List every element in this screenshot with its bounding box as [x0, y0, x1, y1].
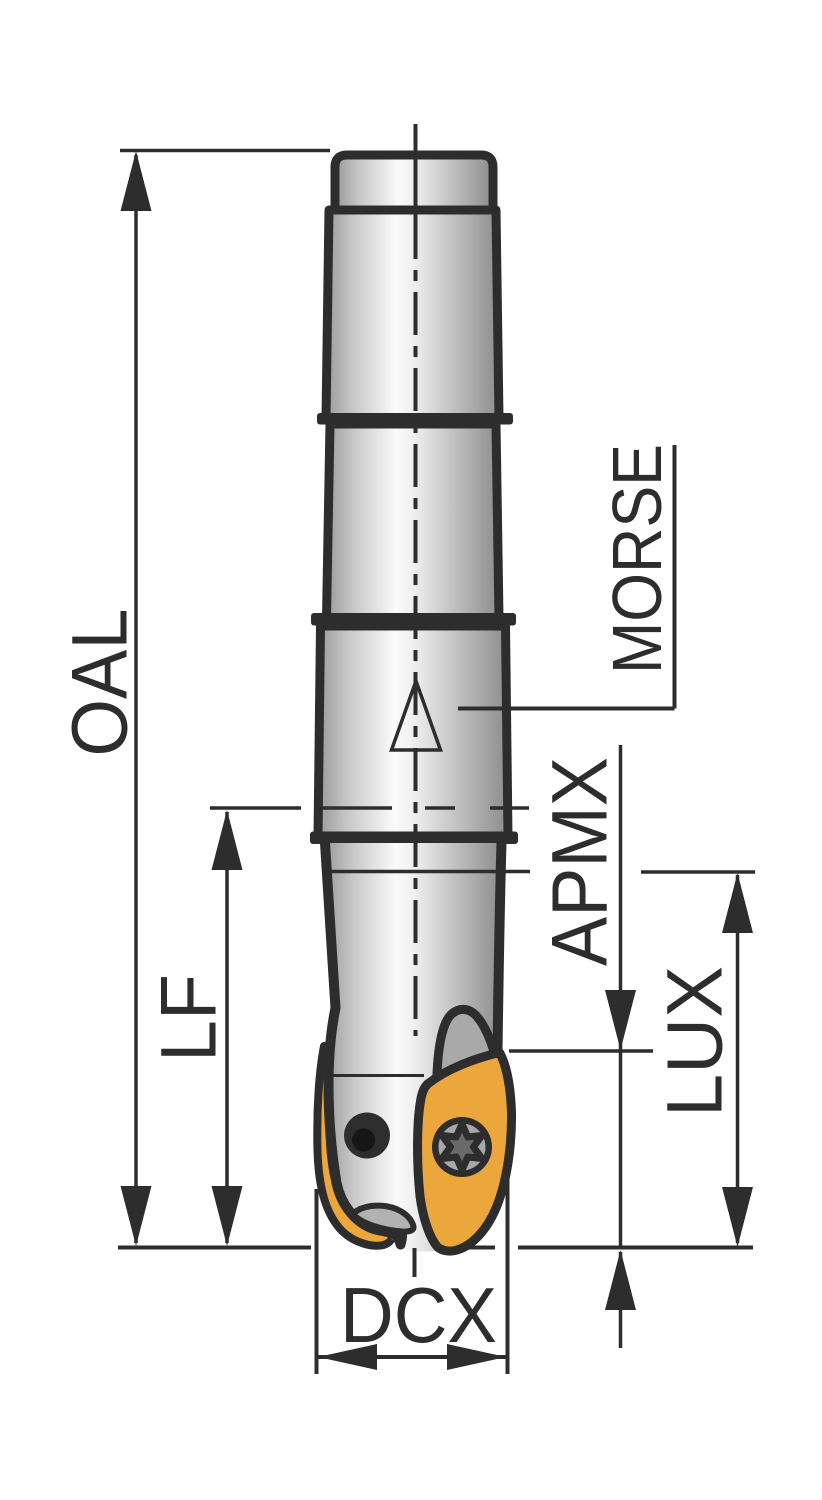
svg-text:MORSE: MORSE — [598, 444, 676, 674]
svg-text:LUX: LUX — [650, 966, 739, 1117]
svg-text:DCX: DCX — [340, 1271, 497, 1359]
svg-text:LF: LF — [144, 974, 233, 1062]
svg-text:APMX: APMX — [535, 757, 624, 966]
svg-text:OAL: OAL — [55, 609, 144, 757]
